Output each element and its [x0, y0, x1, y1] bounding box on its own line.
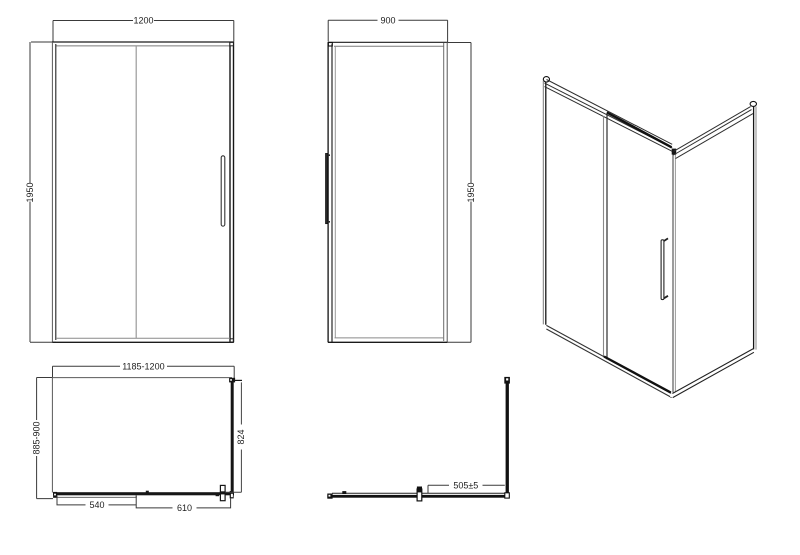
- svg-text:1950: 1950: [466, 182, 476, 202]
- svg-text:900: 900: [380, 15, 395, 25]
- svg-text:1950: 1950: [25, 182, 35, 202]
- svg-text:610: 610: [177, 503, 192, 513]
- svg-text:824: 824: [236, 429, 246, 444]
- svg-text:505±5: 505±5: [453, 480, 478, 490]
- svg-text:1185-1200: 1185-1200: [122, 361, 164, 371]
- svg-text:540: 540: [89, 500, 104, 510]
- svg-text:885-900: 885-900: [31, 421, 41, 454]
- svg-text:1200: 1200: [133, 16, 153, 26]
